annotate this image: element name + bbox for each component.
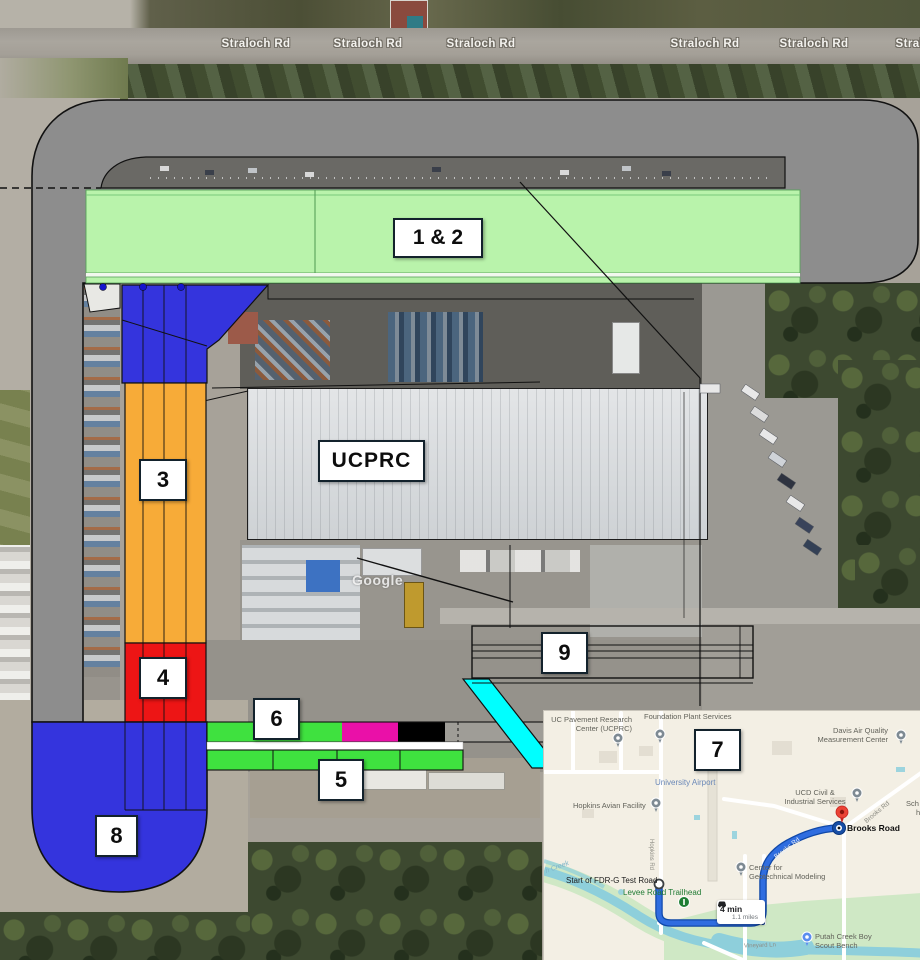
zone-label-9: 9 xyxy=(541,632,588,674)
track-inner-cutout xyxy=(101,157,785,188)
road-label-straloch-2: Straloch Rd xyxy=(334,38,403,50)
zone-label-1-2: 1 & 2 xyxy=(393,218,483,258)
inset-route-map: UC Pavement ResearchCenter (UCPRC) Found… xyxy=(543,710,920,960)
zone-blue-upper xyxy=(122,285,268,383)
zone-label-5: 5 xyxy=(318,759,364,801)
poi-pin-foundation xyxy=(655,729,665,743)
zone-label-3: 3 xyxy=(139,459,187,501)
place-sch-partial-2: h xyxy=(916,808,920,817)
place-university-airport: University Airport xyxy=(655,778,715,787)
poi-pin-ucd xyxy=(852,788,862,802)
trip-distance: 1.1 miles xyxy=(732,914,762,921)
strip-gap-white xyxy=(207,742,463,750)
road-label-vineyard: Vineyard Ln xyxy=(744,941,776,951)
zone-label-4: 4 xyxy=(139,657,187,699)
trip-duration-bubble: 4 min 1.1 miles xyxy=(717,900,765,924)
place-sch-partial: Sch xyxy=(906,799,919,808)
zone-3-orange xyxy=(125,383,206,643)
place-geotechnical: Center forGeotechnical Modeling xyxy=(749,863,825,881)
building-label-ucprc: UCPRC xyxy=(318,440,425,482)
place-hopkins: Hopkins Avian Facility xyxy=(573,801,646,810)
destination-label: Brooks Road xyxy=(847,824,900,833)
trailhead-marker xyxy=(679,897,690,908)
place-ucd-civil: UCD Civil &Industrial Services xyxy=(779,788,851,806)
google-watermark: Google xyxy=(352,572,403,588)
zone-label-7: 7 xyxy=(694,729,741,771)
road-label-straloch-3: Straloch Rd xyxy=(447,38,516,50)
destination-pin xyxy=(836,806,848,823)
road-label-hopkins-rd: Hopkins Rd xyxy=(646,839,655,870)
place-ucprc: UC Pavement ResearchCenter (UCPRC) xyxy=(546,715,632,733)
road-label-straloch-5: Straloch Rd xyxy=(780,38,849,50)
car-icon xyxy=(717,900,727,908)
route-end-marker xyxy=(833,822,846,835)
parked-cars-row xyxy=(700,384,822,555)
place-davis: Davis Air QualityMeasurement Center xyxy=(802,726,888,744)
label-fdr-start: Start of FDR-G Test Road xyxy=(566,876,657,885)
zone-label-8: 8 xyxy=(95,815,138,857)
poi-pin-davis xyxy=(896,730,906,744)
zone-9-outline xyxy=(472,626,753,683)
place-foundation: Foundation Plant Services xyxy=(644,712,732,721)
label-levee-trailhead: Levee Road Trailhead xyxy=(623,888,701,897)
facility-test-track-map: Straloch Rd Straloch Rd Straloch Rd Stra… xyxy=(0,0,920,960)
place-putah-creek-bench: Putah Creek BoyScout Bench xyxy=(815,932,872,950)
road-label-straloch-1: Straloch Rd xyxy=(222,38,291,50)
zone-label-6: 6 xyxy=(253,698,300,740)
road-label-straloch-4: Straloch Rd xyxy=(671,38,740,50)
zone-8-blue-loop-end xyxy=(32,722,207,892)
road-label-straloch-6: Straloch Rd xyxy=(896,38,920,50)
